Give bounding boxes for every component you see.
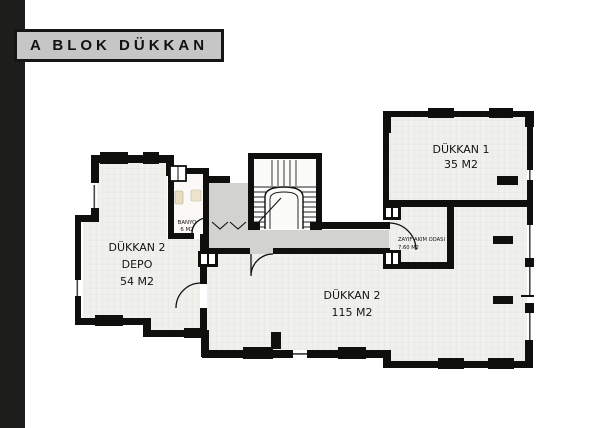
zayif-name: ZAYIF AKIM ODASI xyxy=(398,237,445,243)
depo-area: 54 M2 xyxy=(120,275,154,288)
banyo-name: BANYO xyxy=(178,220,197,226)
depo-usage: DEPO xyxy=(122,258,153,271)
depo-name: DÜKKAN 2 xyxy=(108,241,165,254)
dukkan2-area: 115 M2 xyxy=(332,306,373,319)
floor-plan: DÜKKAN 1 35 M2 DÜKKAN 2 DEPO 54 M2 DÜKKA… xyxy=(0,0,600,428)
sink-fixture xyxy=(191,190,201,201)
page: A BLOK DÜKKAN xyxy=(0,0,600,428)
dukkan1-name: DÜKKAN 1 xyxy=(432,143,489,156)
column-zayif-top xyxy=(383,205,401,220)
column-corridor-left xyxy=(198,251,218,267)
column-zayif-bottom xyxy=(383,250,401,267)
stair-well-railing xyxy=(265,187,303,229)
zayif-area: 7.60 M2 xyxy=(398,245,419,251)
dukkan2-name: DÜKKAN 2 xyxy=(323,289,380,302)
closet-box xyxy=(170,166,186,181)
dukkan1-area: 35 M2 xyxy=(444,158,478,171)
toilet-fixture xyxy=(175,191,183,204)
banyo-area: 6 M2 xyxy=(180,227,193,233)
